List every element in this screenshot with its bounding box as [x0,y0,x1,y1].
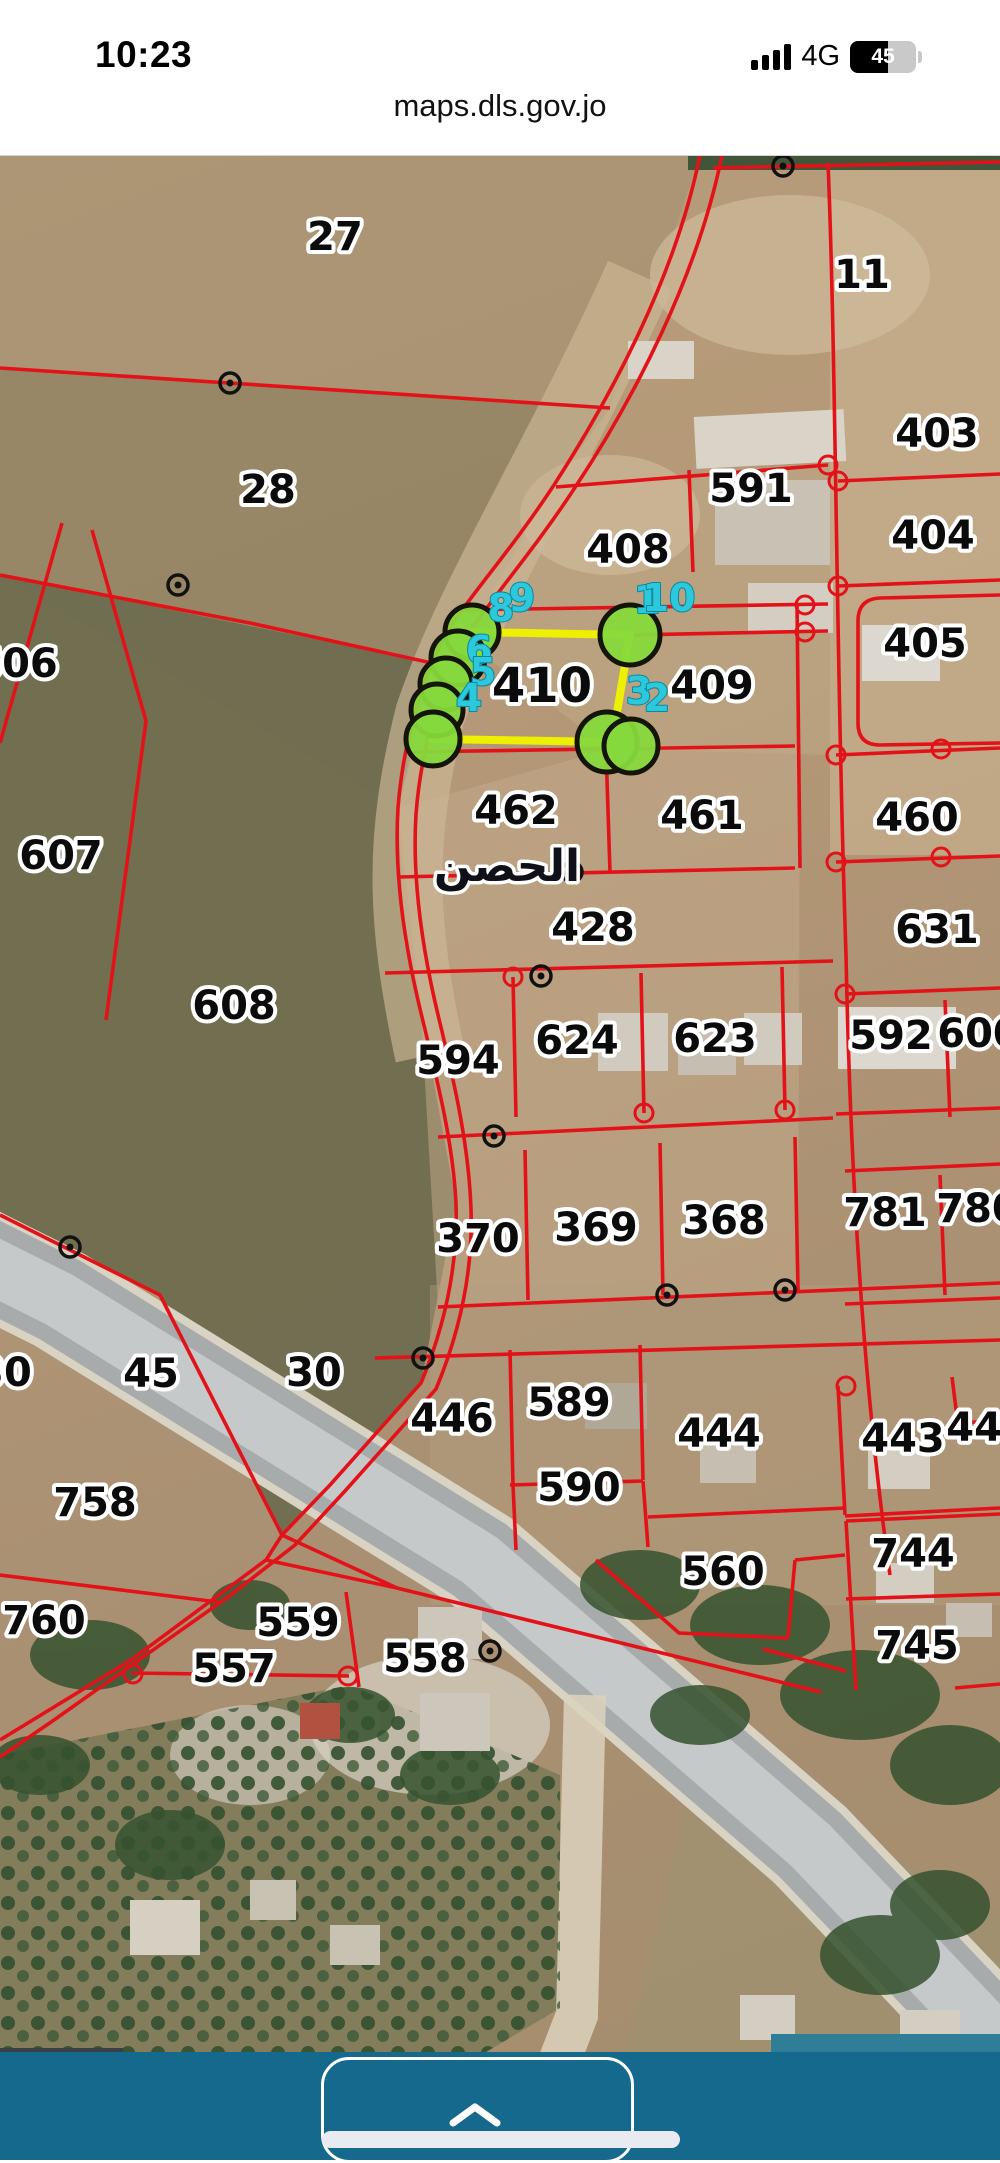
parcel-label-589: 589 [527,1380,611,1426]
parcel-label-594: 594 [416,1038,500,1084]
vertex-number-8: 8 [488,586,514,630]
parcel-label-444: 444 [677,1411,761,1457]
parcel-label-369: 369 [554,1205,638,1251]
parcel-label-446: 446 [410,1396,494,1442]
parcel-label-45: 45 [123,1351,179,1397]
parcel-label-758: 758 [53,1480,137,1526]
status-time: 10:23 [95,34,192,76]
status-and-url-bar: 10:23 4G 45 maps.dls.gov.jo [0,0,1000,156]
parcel-label-443: 443 [861,1416,945,1462]
parcel-label-781: 781 [843,1190,927,1236]
parcel-label-11: 11 [834,252,890,298]
parcel-label-410: 410 [492,658,592,714]
parcel-label-442: 442 [946,1405,1000,1451]
vertex-number-4: 4 [456,676,482,720]
parcel-label-780: 780 [936,1186,1000,1232]
battery-nub [918,51,922,63]
cellular-signal-icon [751,44,791,70]
parcel-label-600: 600 [937,1011,1000,1057]
parcel-label-405: 405 [883,621,967,667]
vertex-number-2: 2 [644,676,670,720]
parcel-label-559: 559 [256,1600,340,1646]
parcel-label-408: 408 [586,527,670,573]
battery-percent: 45 [850,41,916,73]
cadastral-map[interactable]: 1109865432 27114032859140440860640541040… [0,155,1000,2163]
parcel-label-590: 590 [537,1465,621,1511]
home-indicator[interactable] [322,2131,680,2148]
parcel-label-557: 557 [192,1646,276,1692]
parcel-label-27: 27 [307,214,363,260]
battery-icon: 45 [850,41,916,73]
parcel-label-592: 592 [849,1013,933,1059]
parcel-label-623: 623 [673,1016,757,1062]
vertex-number-10: 10 [643,576,696,620]
bottom-drawer [0,2052,1000,2160]
parcel-label-461: 461 [660,793,744,839]
parcel-label-624: 624 [535,1018,619,1064]
chevron-up-icon [445,2101,505,2129]
parcel-label-760: 760 [2,1598,86,1644]
parcel-label-606: 606 [0,641,58,687]
parcel-label-591: 591 [709,466,793,512]
parcel-label-745: 745 [875,1623,959,1669]
parcel-label-608: 608 [192,983,276,1029]
parcel-label-404: 404 [891,513,975,559]
parcel-label-409: 409 [670,663,754,709]
parcel-label-744: 744 [871,1531,955,1577]
vertex-handle[interactable] [406,712,460,766]
parcel-label-30: 30 [0,1350,32,1396]
parcel-label-460: 460 [875,795,959,841]
parcel-label-560: 560 [681,1549,765,1595]
parcel-label-403: 403 [895,411,979,457]
parcel-label-607: 607 [19,833,103,879]
parcel-label-28: 28 [240,467,296,513]
browser-url[interactable]: maps.dls.gov.jo [0,88,1000,124]
map-canvas[interactable]: 1109865432 27114032859140440860640541040… [0,155,1000,2163]
parcel-label-370: 370 [436,1216,520,1262]
vertex-handle[interactable] [604,719,658,773]
parcel-label-462: 462 [474,788,558,834]
parcel-label-368: 368 [682,1198,766,1244]
parcel-label-558: 558 [383,1636,467,1682]
network-type-label: 4G [801,40,840,73]
place-name-label: الحصن [434,841,580,892]
parcel-label-428: 428 [551,905,635,951]
parcel-label-30: 30 [286,1350,342,1396]
parcel-label-631: 631 [895,907,979,953]
